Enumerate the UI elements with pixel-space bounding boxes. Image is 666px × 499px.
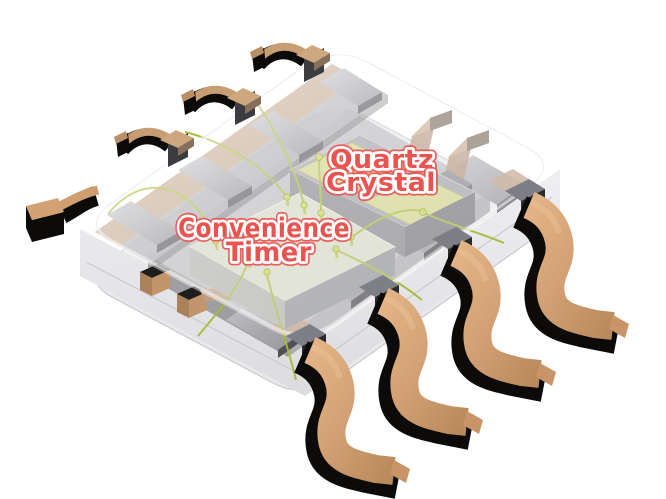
label-quartz-crystal: Quartz Quartz Quartz Crystal Crystal Cry…: [326, 145, 436, 198]
label-timer-text: Timer: [226, 237, 312, 268]
front-lead-4: [505, 179, 629, 338]
illustration-canvas: Quartz Quartz Quartz Crystal Crystal Cry…: [0, 0, 666, 499]
label-crystal-text: Crystal: [326, 168, 436, 198]
chip-illustration: Quartz Quartz Quartz Crystal Crystal Cry…: [0, 0, 666, 499]
